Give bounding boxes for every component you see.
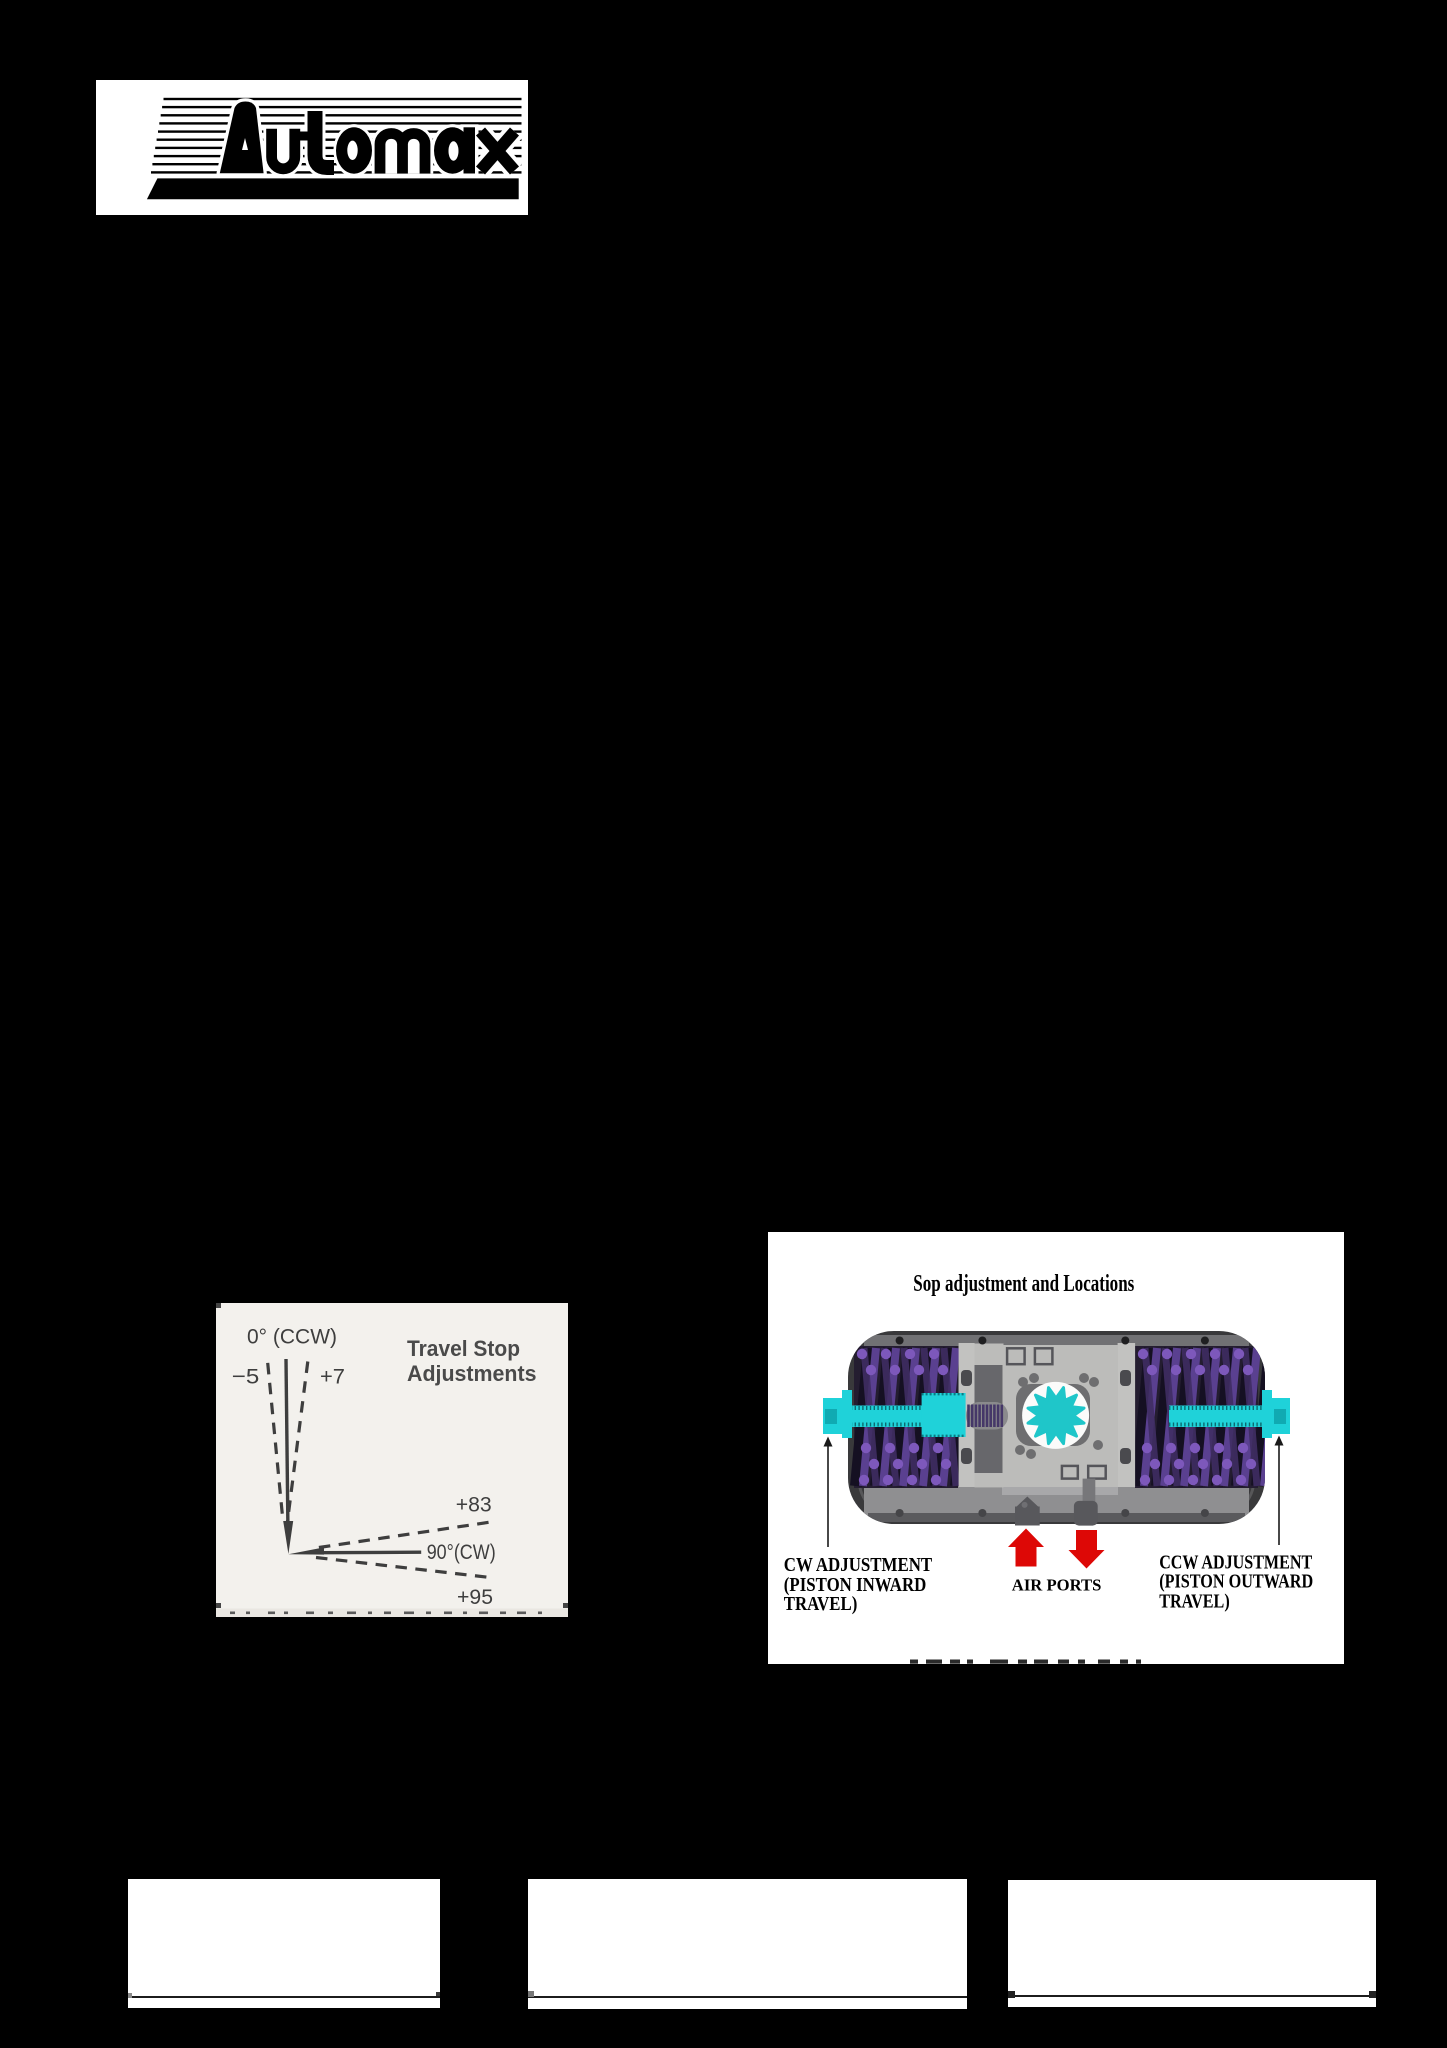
svg-text:(PISTON INWARD: (PISTON INWARD bbox=[784, 1575, 927, 1596]
svg-text:+83: +83 bbox=[456, 1493, 492, 1517]
svg-text:+95: +95 bbox=[457, 1585, 493, 1609]
svg-text:Sop adjustment and Locations: Sop adjustment and Locations bbox=[913, 1271, 1134, 1297]
svg-text:Travel Stop: Travel Stop bbox=[407, 1336, 520, 1361]
svg-text:TRAVEL): TRAVEL) bbox=[1159, 1592, 1230, 1613]
svg-text:TRAVEL): TRAVEL) bbox=[784, 1594, 858, 1615]
svg-text:(PISTON OUTWARD: (PISTON OUTWARD bbox=[1159, 1572, 1313, 1593]
svg-text:0° (CCW): 0° (CCW) bbox=[247, 1325, 337, 1349]
svg-text:CW ADJUSTMENT: CW ADJUSTMENT bbox=[784, 1555, 932, 1576]
svg-text:CCW ADJUSTMENT: CCW ADJUSTMENT bbox=[1159, 1552, 1312, 1573]
svg-text:−5: −5 bbox=[232, 1365, 260, 1389]
svg-text:Adjustments: Adjustments bbox=[407, 1361, 537, 1386]
svg-text:AIR PORTS: AIR PORTS bbox=[1012, 1576, 1102, 1595]
svg-text:+7: +7 bbox=[320, 1365, 345, 1389]
svg-text:90°(CW): 90°(CW) bbox=[427, 1540, 496, 1564]
